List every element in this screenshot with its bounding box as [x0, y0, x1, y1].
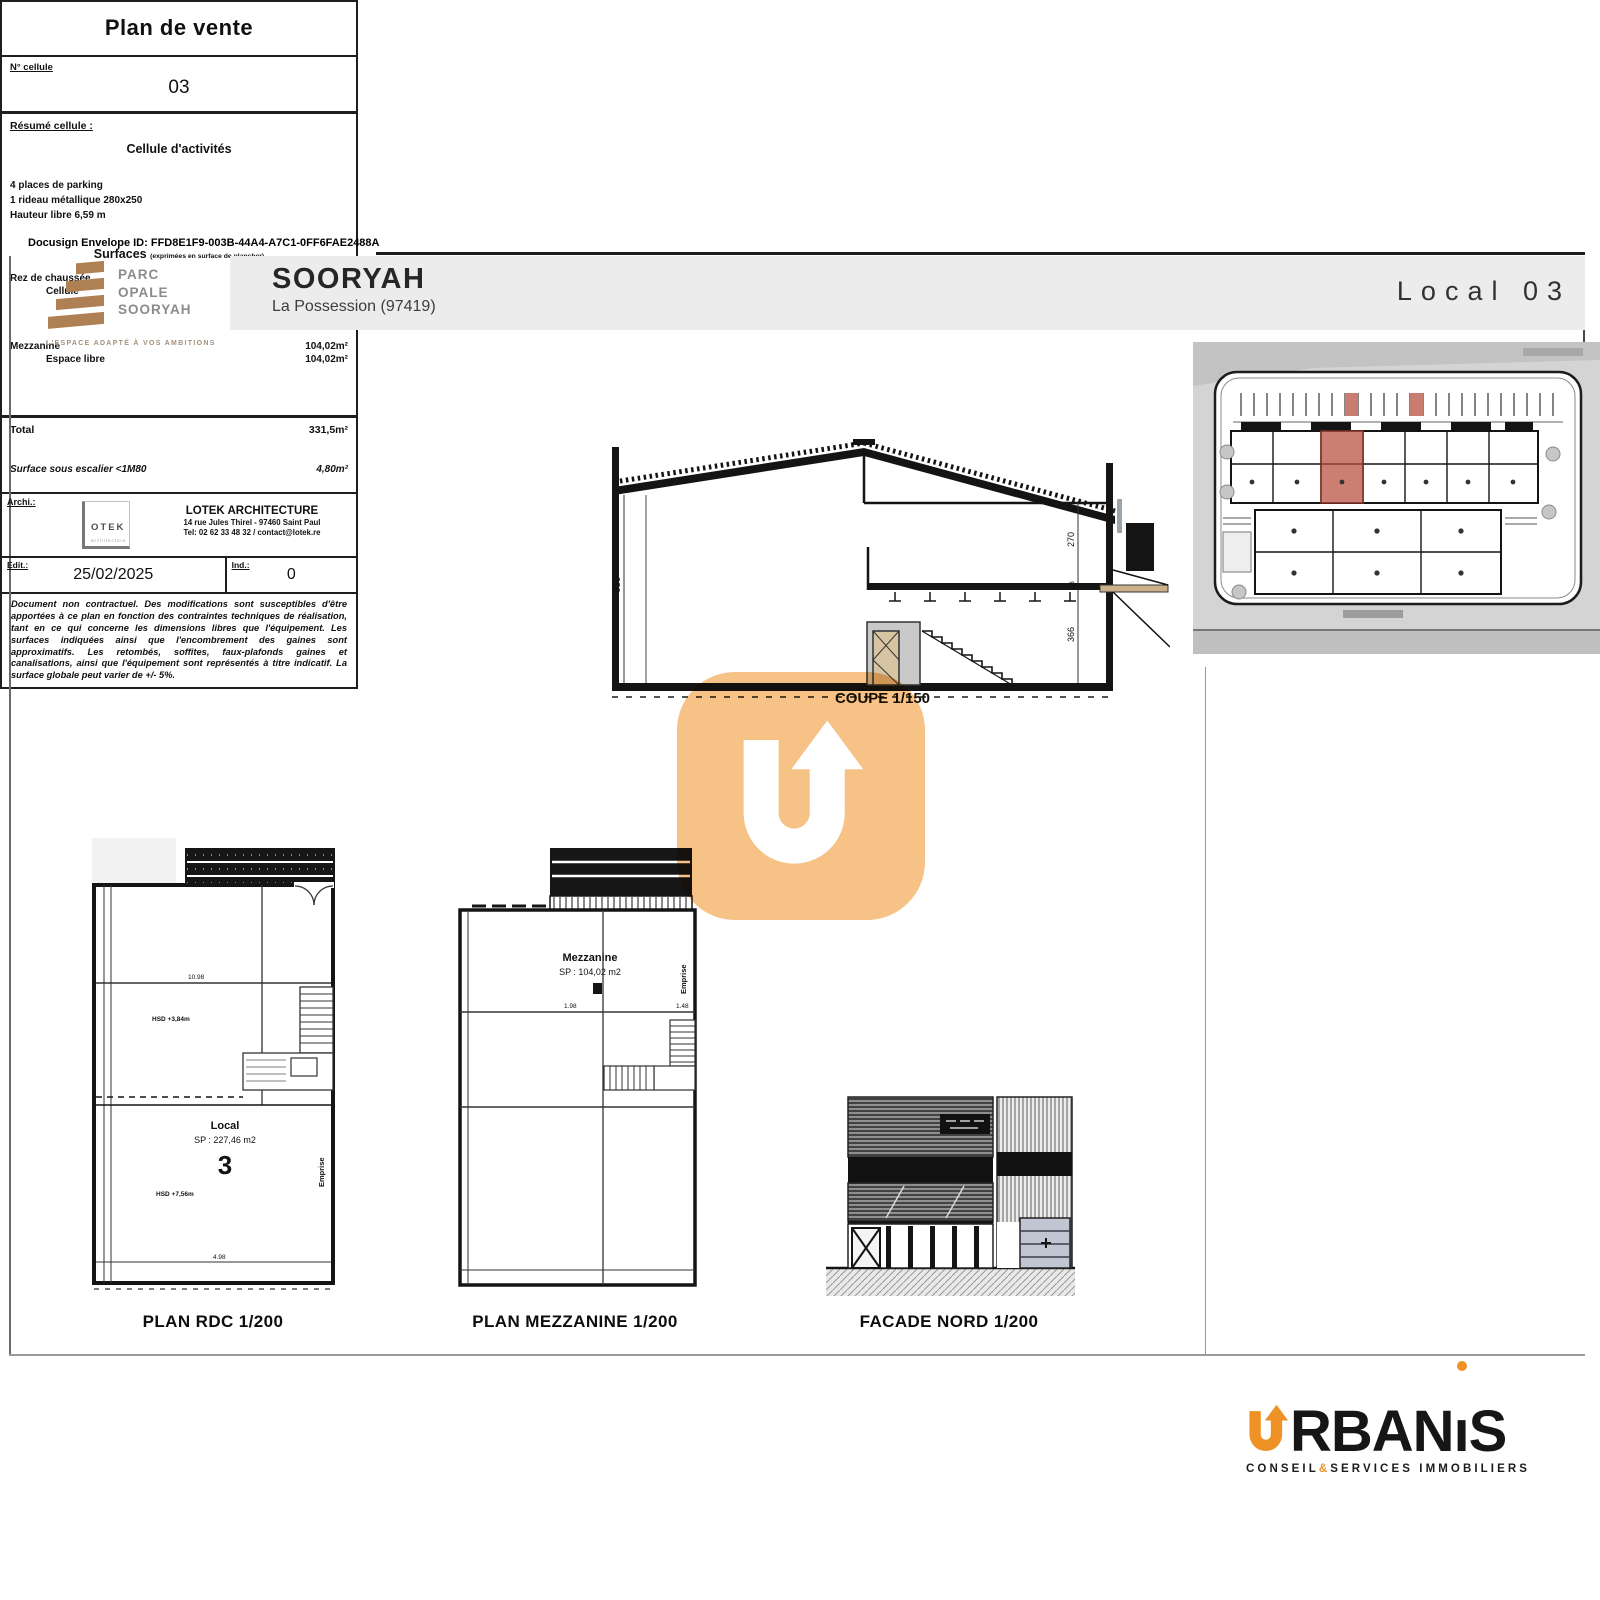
urbanis-wordmark: RBANıS [1290, 1407, 1506, 1457]
mezzanine-dim-left: 1.98 [564, 1003, 577, 1010]
rdc-room-number: 3 [218, 1150, 232, 1180]
rdc-room-label: Local [211, 1120, 240, 1132]
index-cell: Ind.: 0 [227, 558, 356, 593]
architect-name: LOTEK ARCHITECTURE [152, 505, 352, 517]
cell-number-row: N° cellule 03 [2, 57, 356, 115]
total-section: Total331,5m² Surface sous escalier <1M80… [2, 418, 356, 495]
mezzanine-emprise-label: Emprise [679, 964, 688, 994]
rdc-room-area: SP : 227,46 m2 [194, 1135, 256, 1145]
rdc-note-upper: HSD +3,84m [152, 1016, 190, 1023]
unit-title: Local 03 [1185, 276, 1571, 307]
docusign-envelope-id: Docusign Envelope ID: FFD8E1F9-003B-44A4… [28, 237, 380, 249]
rdc-plan-drawing: 10.98 Local SP : 227,46 m2 3 HSD +3,84m … [88, 822, 338, 1292]
project-title: SOORYAH [272, 263, 425, 296]
coupe-dim-366: 366 [1066, 627, 1076, 642]
frame-left-rule [9, 256, 11, 1356]
rdc-note-lower: HSD +7,56m [156, 1191, 194, 1198]
rdc-dim-bottom: 4.98 [213, 1254, 226, 1261]
panel-title: Plan de vente [2, 2, 356, 57]
frame-top-rule [376, 252, 1585, 255]
facade-drawing [826, 1066, 1076, 1301]
disclaimer-text: Document non contractuel. Des modificati… [2, 594, 356, 687]
mezzanine-plan-drawing: Mezzanine SP : 104,02 m2 1.98 1.48 Empri… [452, 822, 702, 1292]
lotek-logo-icon: OTEK architecture [82, 501, 130, 549]
architect-contact: Tel: 02 62 33 48 32 / contact@lotek.re [152, 528, 352, 537]
coupe-dim-659: 659 [612, 576, 623, 593]
resume-title: Cellule d'activités [2, 142, 356, 156]
total-row: Total331,5m² [10, 424, 348, 436]
parc-opale-logo-icon [46, 258, 112, 339]
cell-number-label: N° cellule [10, 62, 53, 73]
resume-line: 1 rideau métallique 280x250 [10, 193, 356, 208]
rdc-caption: PLAN RDC 1/200 [98, 1312, 328, 1332]
mezzanine-room-label: Mezzanine [562, 952, 617, 964]
date-row: Edit.: 25/02/2025 Ind.: 0 [2, 558, 356, 595]
cell-number-value: 03 [2, 77, 356, 99]
resume-label: Résumé cellule : [10, 120, 356, 132]
resume-line: Hauteur libre 6,59 m [10, 208, 356, 223]
coupe-dim-23: 23 [1070, 581, 1076, 588]
urbanis-tagline: CONSEIL&SERVICES IMMOBILIERS [1246, 1463, 1566, 1475]
index-label: Ind.: [232, 560, 250, 570]
mezzanine-dim-right: 1.48 [676, 1003, 689, 1010]
urbanis-u-arrow-icon [1246, 1400, 1290, 1457]
urbanis-logo: RBANıS CONSEIL&SERVICES IMMOBILIERS [1246, 1400, 1566, 1475]
page: Docusign Envelope ID: FFD8E1F9-003B-44A4… [0, 0, 1600, 1600]
mezzanine-caption: PLAN MEZZANINE 1/200 [452, 1312, 698, 1332]
coupe-drawing: 659 270 23 366 [610, 435, 1170, 705]
architect-address: 14 rue Jules Thirel - 97460 Saint Paul [152, 518, 352, 527]
i-dot-icon [1457, 1361, 1467, 1371]
project-location: La Possession (97419) [272, 298, 436, 316]
rdc-emprise-label: Emprise [317, 1157, 326, 1187]
edition-date-value: 25/02/2025 [2, 566, 225, 584]
resume-line: 4 places de parking [10, 178, 356, 193]
parc-opale-logo-text: PARC OPALE SOORYAH [118, 266, 192, 319]
panel-outer-line [1205, 667, 1206, 1356]
architect-section: Archi.: OTEK architecture LOTEK ARCHITEC… [2, 494, 356, 558]
site-plan-thumbnail [1193, 342, 1600, 654]
architect-label: Archi.: [7, 497, 36, 507]
parc-opale-logo-tagline: L'ESPACE ADAPTÉ À VOS AMBITIONS [46, 340, 216, 347]
under-stairs-row: Surface sous escalier <1M804,80m² [10, 464, 348, 475]
edition-date-label: Edit.: [7, 560, 28, 570]
surface-row: Espace libre104,02m² [10, 354, 348, 365]
frame-bottom-rule [9, 1354, 1585, 1356]
mezzanine-room-area: SP : 104,02 m2 [559, 967, 621, 977]
edition-date-cell: Edit.: 25/02/2025 [2, 558, 227, 593]
facade-caption: FACADE NORD 1/200 [826, 1312, 1072, 1332]
coupe-dim-270: 270 [1066, 532, 1076, 547]
urbanis-watermark-icon [677, 672, 925, 920]
rdc-dim-top: 10.98 [188, 974, 205, 981]
